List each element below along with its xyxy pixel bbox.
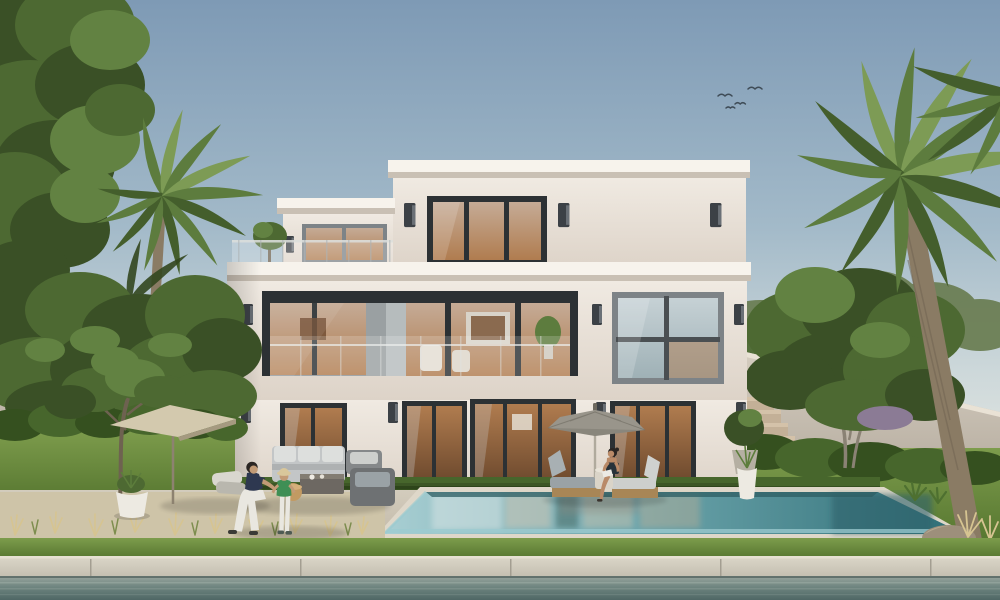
swimming-pool <box>374 487 974 538</box>
villa-building <box>227 160 751 492</box>
armchair-front <box>350 468 395 506</box>
second-floor <box>227 262 751 400</box>
wall-sconce <box>558 203 570 227</box>
pool-reflections <box>432 494 932 534</box>
purple-shrub <box>857 406 913 430</box>
wall-sconce <box>592 304 602 325</box>
wall-sconce <box>734 304 744 325</box>
pool-tile-front <box>385 529 963 533</box>
front-grass-strip <box>0 538 1000 559</box>
wall-sconce <box>388 402 398 423</box>
waterway <box>0 576 1000 600</box>
wall-sconce <box>404 203 416 227</box>
coffee-table <box>300 474 344 494</box>
second-floor-window-right <box>612 292 724 384</box>
third-floor-window <box>427 196 547 264</box>
stone-promenade <box>0 556 1000 578</box>
wall-sconce <box>710 203 722 227</box>
scene-canvas <box>0 0 1000 600</box>
balcony <box>262 291 578 376</box>
glass-doors-b <box>402 401 467 484</box>
villa-rendering-scene <box>0 0 1000 600</box>
third-floor <box>388 160 750 268</box>
